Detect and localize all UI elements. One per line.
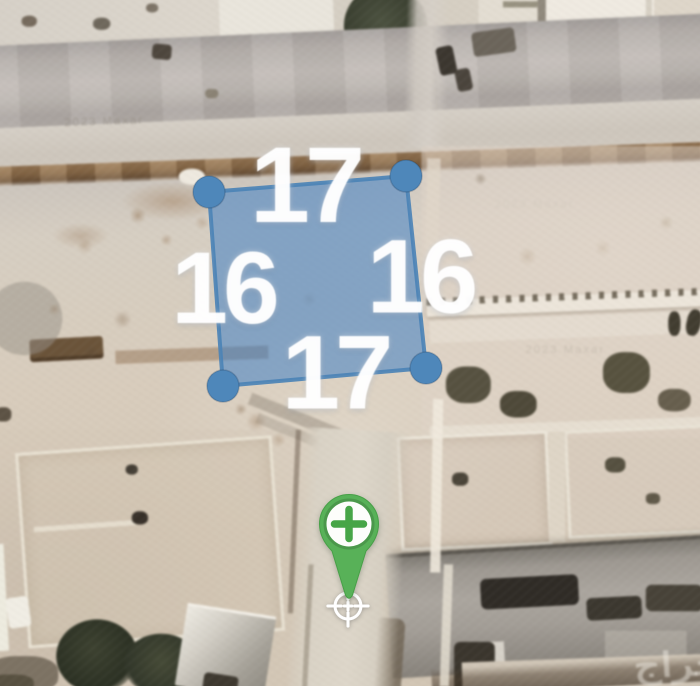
plot-side-length-top: 17 xyxy=(250,131,360,239)
plot-corner-handle-top-left[interactable] xyxy=(193,176,225,208)
plot-corner-handle-bottom-left[interactable] xyxy=(207,370,239,402)
plot-corner-handle-bottom-right[interactable] xyxy=(410,352,442,384)
plot-side-length-bottom: 17 xyxy=(282,320,389,425)
plot-side-length-left: 16 xyxy=(171,237,274,339)
map-viewport[interactable]: 2023 Maxar 2023 Maxar 2023 Maxar حراج 17… xyxy=(0,0,700,686)
plot-corner-handle-top-right[interactable] xyxy=(390,160,422,192)
add-location-pin[interactable] xyxy=(317,493,381,601)
